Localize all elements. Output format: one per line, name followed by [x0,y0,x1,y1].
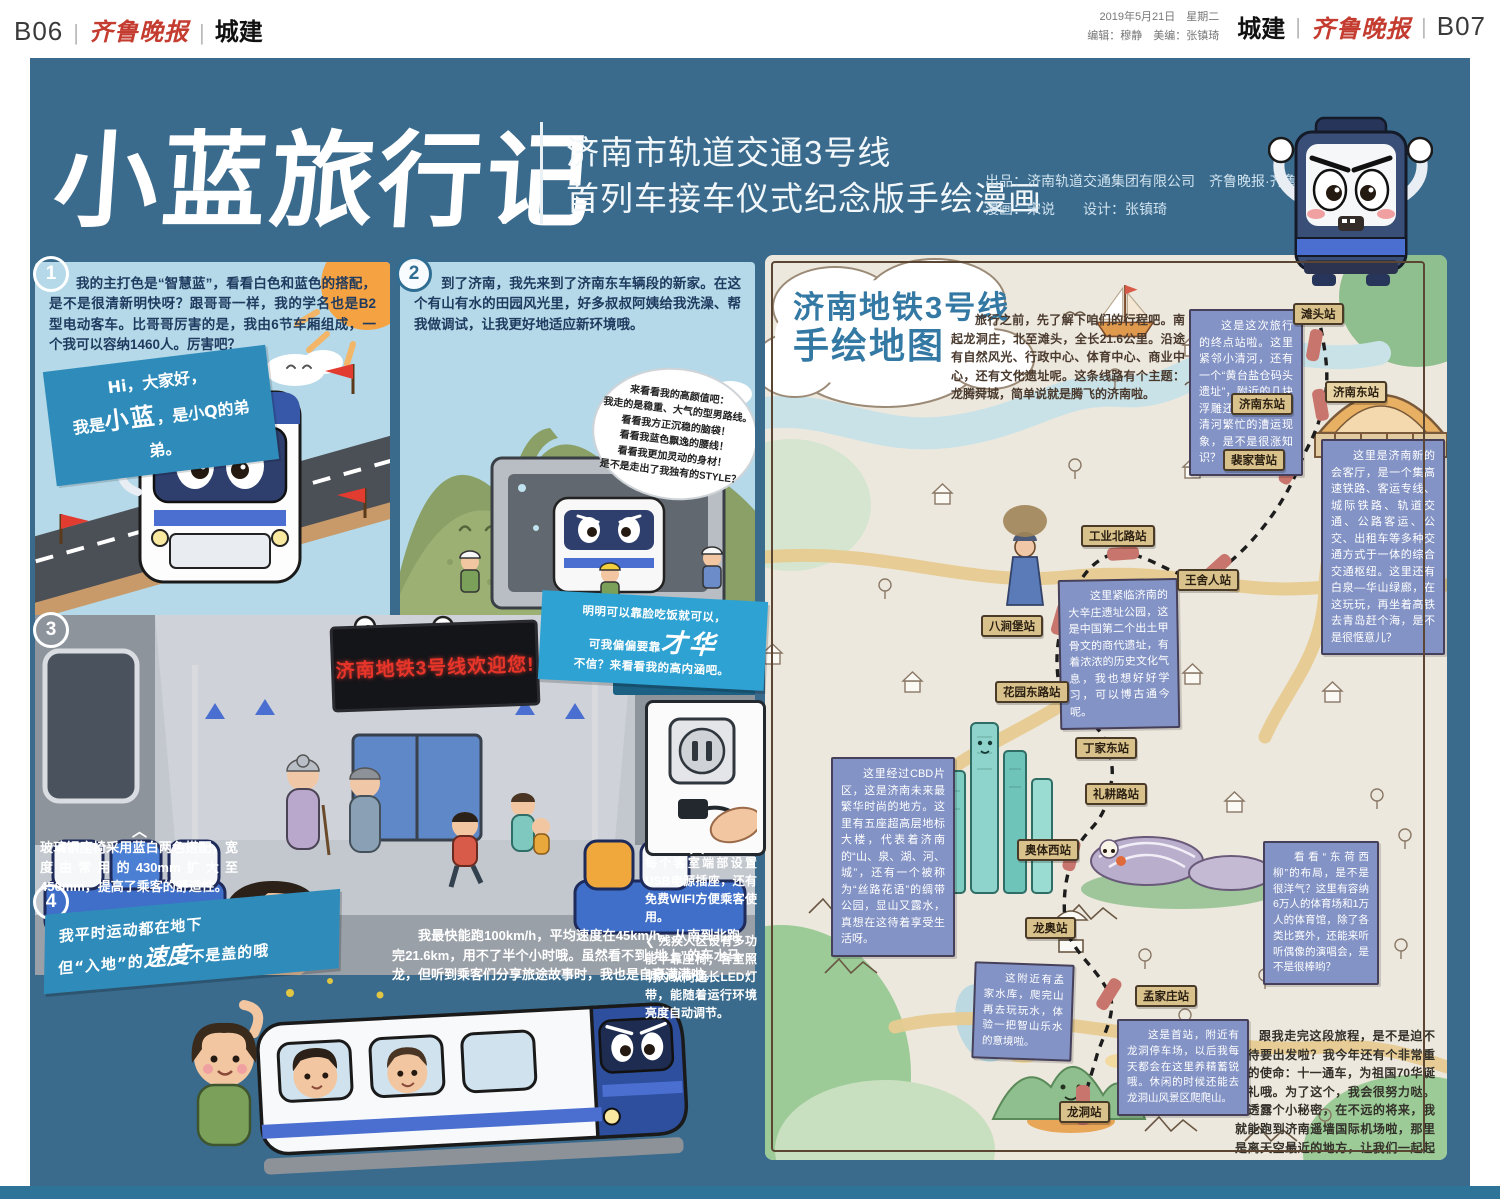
bubble-line-2b: ，是小Q的弟弟。 [148,397,250,460]
slogan-line-2b: 不是盖的哦 [189,941,269,966]
slogan-emphasis: 速度 [143,942,189,972]
station-building-label: 济南东站 [1325,381,1387,403]
station-label-aotixi: 奥体西站 [1017,839,1079,861]
station-label-jinandong: 济南东站 [1231,393,1293,415]
station-label-gongyebeilu: 工业北路站 [1081,525,1155,547]
newspaper-logo: 齐鲁晚报 [89,12,189,47]
panel-1-narration: 我的主打色是“智慧蓝”，看看白色和蓝色的搭配，是不是很清新明快呀？跟哥哥一样，我… [35,262,390,355]
scholar-figure [1003,505,1047,605]
map-intro-text: 旅行之前，先了解下咱们的行程吧。南起龙洞庄，北至滩头，全长21.6公里。沿途有自… [951,311,1185,404]
station-label-wangsheren: 王舍人站 [1177,569,1239,591]
station-label-huayuandonglu: 花园东路站 [995,681,1069,703]
map-note-stadium: 看看“东荷西柳”的布局，是不是很洋气？这里有容纳6万人的体育场和1万人的体育馆，… [1263,841,1379,985]
hand-drawn-map: 济南地铁3号线 手绘地图 旅行之前，先了解下咱们的行程吧。南起龙洞庄，北至滩头，… [765,255,1447,1160]
main-title: 小蓝旅行记 [50,96,601,247]
seat-caption: 玻璃钢座椅采用蓝白两色搭配，宽度由常用的430mm扩大至450mm，提高了乘客的… [40,838,238,897]
panel-2-number: 2 [396,256,432,292]
talent-line-2a: 可我偏偏要靠 [588,637,661,655]
map-note-jinandong: 这里是济南新的会客厅，是一个集高速铁路、客运专线、城际铁路、轨道交通、公路客运、… [1321,439,1445,655]
mascot-name: 小蓝 [103,402,158,436]
olympic-stadium [1081,837,1281,909]
page-number-left: B06 [14,16,63,47]
panel-1-number: 1 [33,256,69,292]
map-note-mengjia: 这附近有孟家水库，爬完山再去玩玩水，体验一把智山乐水的意境啦。 [971,961,1074,1061]
map-outro-text: 跟我走完这段旅程，是不是迫不及待要出发啦？我今年还有个非常重要的使命：十一通车，… [1235,1027,1435,1160]
issue-meta: 2019年5月21日 星期二 编辑：穆静 美编：张镇琦 [1087,8,1219,45]
station-label-peijiaying: 裴家营站 [1223,449,1285,471]
comic-panel-1: 我的主打色是“智慧蓝”，看看白色和蓝色的搭配，是不是很清新明快呀？跟哥哥一样，我… [35,262,390,618]
station-label-tantou: 滩头站 [1293,303,1344,325]
station-label-dingjiadong: 丁家东站 [1075,737,1137,759]
comic-panel-2: 到了济南，我先来到了济南东车辆段的新家。在这个有山有水的田园风光里，好多叔叔阿姨… [400,262,755,618]
divider: | [199,20,205,46]
mascot-train-character [1268,98,1433,293]
map-note-daxinzhuang: 这里紧临济南的大辛庄遗址公园，这是中国第二个出土甲骨文的商代遗址，有着浓浓的历史… [1058,578,1181,730]
subtitle-line-1: 济南市轨道交通3号线 [566,126,891,174]
station-label-ligenglu: 礼耕路站 [1085,783,1147,805]
usb-caption: 每个客室端部设置USB电源插座，还有免费WIFI方便乘客使用。 [645,854,757,926]
page-number-right: B07 [1437,11,1486,42]
date-line: 2019年5月21日 星期二 [1087,8,1219,27]
panel-3-number: 3 [33,612,69,648]
divider: | [1421,14,1427,40]
newspaper-page: B06 | 齐鲁晚报 | 城建 2019年5月21日 星期二 编辑：穆静 美编：… [0,0,1500,1199]
led-text: 济南地铁3号线欢迎您! [335,649,535,683]
talent-emphasis: 才华 [660,628,718,661]
title-divider [540,122,543,224]
credit-line-2: 漫画：宋说 设计：张镇琦 [985,196,1167,223]
header-right: 2019年5月21日 星期二 编辑：穆静 美编：张镇琦 城建 | 齐鲁晚报 | … [1087,8,1486,45]
divider: | [73,20,79,46]
bubble-line-2a: 我是 [72,415,106,438]
passenger-grandpa [350,768,380,852]
station-label-longdong: 龙洞站 [1059,1101,1110,1123]
divider: | [1295,14,1301,40]
talent-speech-bubble: 明明可以靠脸吃饭就可以， 可我偏偏要靠才华 不信？来看看我的高内涵吧。 [538,590,768,691]
led-destination-sign: 济南地铁3号线欢迎您! [330,619,541,712]
section-label-right: 城建 [1237,9,1285,44]
station-label-bajianbu: 八涧堡站 [981,615,1043,637]
map-note-cbd: 这里经过CBD片区，这是济南未来最繁华时尚的地方。这里有五座超高层地标大楼，代表… [831,757,955,957]
station-label-longao: 龙奥站 [1025,917,1076,939]
section-label: 城建 [215,12,263,47]
waving-girl [192,1005,259,1145]
cbd-towers [943,723,1052,893]
map-note-longdong: 这是首站，附近有龙洞停车场，以后我每天都会在这里养精蓄锐哦。休闲的时候还能去龙洞… [1117,1019,1249,1116]
usb-outlet-closeup [645,700,766,856]
panel-4-narration: 我最快能跑100km/h，平均速度在45km/h，从南到北跑完21.6km，用不… [392,926,740,985]
header-left: B06 | 齐鲁晚报 | 城建 [14,12,263,47]
slogan-line-2a: 但“入地”的 [58,952,144,978]
station-label-mengjiazhuang: 孟家庄站 [1135,985,1197,1007]
panel-2-narration: 到了济南，我先来到了济南东车辆段的新家。在这个有山有水的田园风光里，好多叔叔阿姨… [400,262,755,335]
subtitle-line-2: 首列车接车仪式纪念版手绘漫画 [566,172,1042,220]
editor-line: 编辑：穆静 美编：张镇琦 [1087,27,1219,46]
newspaper-logo-right: 齐鲁晚报 [1311,9,1411,44]
